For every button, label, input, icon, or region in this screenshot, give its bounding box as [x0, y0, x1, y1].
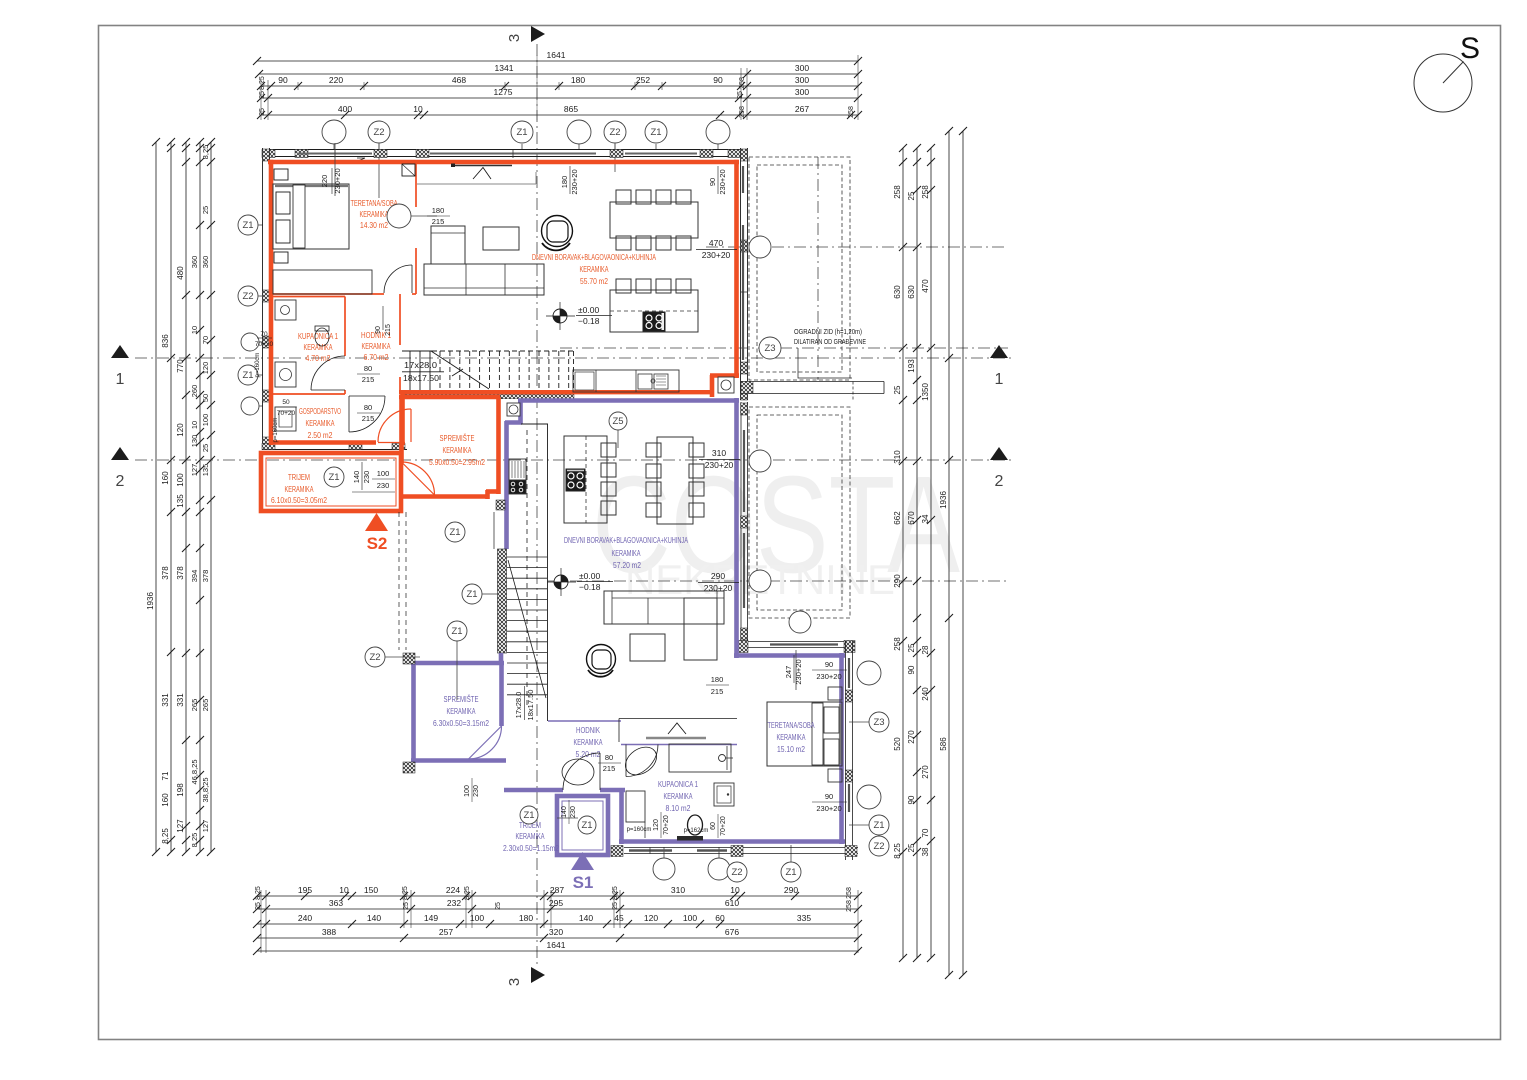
- svg-text:310: 310: [893, 450, 902, 464]
- svg-text:230+20: 230+20: [816, 804, 841, 813]
- svg-text:25: 25: [201, 444, 210, 452]
- svg-text:80: 80: [364, 364, 372, 373]
- svg-text:45: 45: [614, 913, 624, 923]
- svg-text:1936: 1936: [939, 491, 948, 509]
- svg-text:215: 215: [603, 764, 616, 773]
- svg-text:230: 230: [377, 481, 390, 490]
- svg-text:18x17.50: 18x17.50: [403, 373, 439, 383]
- svg-text:1641: 1641: [547, 50, 566, 60]
- svg-text:70+20: 70+20: [720, 816, 727, 836]
- svg-text:258: 258: [739, 77, 746, 89]
- svg-text:KERAMIKA: KERAMIKA: [443, 446, 472, 455]
- svg-text:KERAMIKA: KERAMIKA: [516, 832, 545, 841]
- svg-text:8,25: 8,25: [161, 828, 170, 844]
- svg-text:224: 224: [446, 885, 460, 895]
- svg-text:140: 140: [352, 471, 361, 484]
- svg-text:Z1: Z1: [873, 820, 884, 831]
- svg-text:57.20 m2: 57.20 m2: [613, 561, 641, 570]
- svg-text:SPREMIŠTE: SPREMIŠTE: [444, 695, 479, 704]
- svg-text:388: 388: [322, 927, 336, 937]
- svg-text:1341: 1341: [495, 63, 514, 73]
- svg-text:DNEVNI BORAVAK+BLAGOVAONICA+KU: DNEVNI BORAVAK+BLAGOVAONICA+KUHINJA: [532, 253, 656, 262]
- svg-text:70: 70: [260, 331, 268, 338]
- svg-text:18x17.50: 18x17.50: [526, 690, 535, 721]
- svg-text:100: 100: [176, 473, 185, 487]
- svg-text:±0.00: ±0.00: [579, 571, 600, 581]
- svg-text:TRIJEM: TRIJEM: [288, 473, 310, 482]
- svg-text:90: 90: [907, 665, 916, 674]
- svg-text:310: 310: [671, 885, 685, 895]
- svg-text:Z2: Z2: [609, 127, 620, 138]
- svg-text:270: 270: [907, 730, 916, 744]
- svg-text:Z1: Z1: [785, 867, 796, 878]
- svg-text:198: 198: [176, 783, 185, 797]
- svg-text:265: 265: [201, 699, 210, 712]
- svg-text:120: 120: [201, 362, 210, 375]
- svg-text:Z3: Z3: [873, 717, 884, 728]
- svg-text:p=160cm: p=160cm: [255, 353, 261, 378]
- svg-text:1936: 1936: [146, 592, 155, 610]
- svg-text:90: 90: [375, 326, 382, 334]
- svg-text:KERAMIKA: KERAMIKA: [362, 342, 391, 351]
- svg-text:Z1: Z1: [449, 527, 460, 538]
- svg-text:25: 25: [737, 91, 744, 99]
- svg-text:100: 100: [464, 785, 471, 797]
- svg-text:267: 267: [795, 104, 809, 114]
- svg-text:17x28.0: 17x28.0: [514, 692, 523, 719]
- svg-text:230+20: 230+20: [570, 169, 579, 194]
- svg-text:400: 400: [338, 104, 352, 114]
- svg-text:p=162cm: p=162cm: [684, 828, 709, 834]
- svg-text:70: 70: [201, 336, 210, 344]
- svg-text:25: 25: [907, 643, 916, 652]
- svg-text:Z1: Z1: [328, 472, 339, 483]
- svg-text:240: 240: [298, 913, 312, 923]
- svg-text:230+20: 230+20: [718, 169, 727, 194]
- svg-text:38: 38: [921, 847, 930, 856]
- svg-text:HODNIK: HODNIK: [576, 726, 601, 735]
- svg-text:670: 670: [907, 511, 916, 525]
- svg-text:140: 140: [579, 913, 593, 923]
- svg-text:S1: S1: [573, 873, 594, 892]
- svg-text:10: 10: [190, 326, 199, 334]
- svg-text:140: 140: [561, 806, 568, 818]
- svg-text:KERAMIKA: KERAMIKA: [285, 485, 314, 494]
- svg-text:90: 90: [708, 178, 717, 186]
- svg-text:25: 25: [201, 206, 210, 214]
- svg-text:Z1: Z1: [650, 127, 661, 138]
- svg-text:8,25: 8,25: [402, 886, 409, 900]
- svg-text:6.30x0.50=3.15m2: 6.30x0.50=3.15m2: [433, 719, 489, 728]
- svg-text:2.30x0.50=1.15m2: 2.30x0.50=1.15m2: [503, 844, 559, 853]
- svg-text:290: 290: [784, 885, 798, 895]
- svg-text:1641: 1641: [547, 940, 566, 950]
- svg-text:25: 25: [259, 108, 266, 116]
- svg-text:25: 25: [495, 902, 502, 910]
- svg-text:120: 120: [653, 819, 660, 831]
- svg-text:100: 100: [683, 913, 697, 923]
- svg-text:3: 3: [506, 34, 523, 42]
- svg-text:15.10 m2: 15.10 m2: [777, 745, 805, 754]
- svg-text:127: 127: [176, 819, 185, 833]
- svg-text:25: 25: [403, 902, 410, 910]
- svg-text:470: 470: [709, 238, 723, 248]
- svg-text:55.70 m2: 55.70 m2: [580, 277, 608, 286]
- svg-text:295: 295: [549, 898, 563, 908]
- svg-text:KERAMIKA: KERAMIKA: [447, 707, 476, 716]
- svg-text:270: 270: [921, 765, 930, 779]
- svg-text:46,8,25: 46,8,25: [190, 759, 199, 784]
- svg-text:25: 25: [612, 902, 619, 910]
- svg-text:120: 120: [176, 423, 185, 437]
- svg-text:TERETANA/SOBA: TERETANA/SOBA: [768, 721, 815, 730]
- svg-text:Z2: Z2: [731, 867, 742, 878]
- svg-text:Z1: Z1: [581, 820, 592, 831]
- svg-text:100: 100: [470, 913, 484, 923]
- svg-text:394: 394: [190, 570, 199, 583]
- svg-text:25: 25: [255, 902, 262, 910]
- svg-text:230+20: 230+20: [333, 168, 342, 193]
- svg-text:258: 258: [921, 185, 930, 199]
- svg-text:25: 25: [907, 843, 916, 852]
- svg-text:90: 90: [713, 75, 723, 85]
- svg-text:865: 865: [564, 104, 578, 114]
- svg-text:28: 28: [921, 645, 930, 654]
- svg-text:8.10 m2: 8.10 m2: [666, 804, 691, 813]
- svg-text:480: 480: [176, 266, 185, 280]
- svg-text:KUPAONICA 1: KUPAONICA 1: [298, 332, 338, 341]
- svg-text:−0.18: −0.18: [579, 582, 601, 592]
- svg-text:363: 363: [329, 898, 343, 908]
- svg-text:220: 220: [329, 75, 343, 85]
- svg-text:2: 2: [116, 473, 125, 490]
- svg-text:150: 150: [364, 885, 378, 895]
- svg-text:1350: 1350: [921, 383, 930, 401]
- svg-text:Z1: Z1: [242, 220, 253, 231]
- svg-text:230+20: 230+20: [702, 250, 731, 260]
- svg-text:135: 135: [201, 464, 210, 477]
- svg-text:2.50 m2: 2.50 m2: [308, 431, 333, 440]
- svg-text:10: 10: [190, 421, 199, 429]
- svg-text:252: 252: [636, 75, 650, 85]
- svg-text:662: 662: [893, 511, 902, 525]
- svg-text:OGRADNI ZID (h=1,20m): OGRADNI ZID (h=1,20m): [794, 327, 862, 336]
- svg-text:331: 331: [176, 693, 185, 707]
- svg-text:DNEVNI BORAVAK+BLAGOVAONICA+KU: DNEVNI BORAVAK+BLAGOVAONICA+KUHINJA: [564, 536, 688, 545]
- svg-text:258: 258: [893, 637, 902, 651]
- svg-text:215: 215: [432, 217, 445, 226]
- svg-text:100: 100: [201, 414, 210, 427]
- svg-text:10: 10: [339, 885, 349, 895]
- svg-text:90: 90: [825, 660, 833, 669]
- svg-text:Z1: Z1: [451, 626, 462, 637]
- svg-text:25: 25: [259, 91, 266, 99]
- svg-text:836: 836: [161, 334, 170, 348]
- svg-text:4.70 m2: 4.70 m2: [306, 354, 331, 363]
- svg-text:50: 50: [282, 399, 290, 406]
- svg-text:230+20: 230+20: [705, 460, 734, 470]
- svg-text:230: 230: [473, 785, 480, 797]
- svg-text:Z2: Z2: [242, 291, 253, 302]
- svg-text:676: 676: [725, 927, 739, 937]
- svg-text:Z1: Z1: [523, 810, 534, 821]
- svg-text:130: 130: [190, 435, 199, 448]
- svg-text:p=160cm: p=160cm: [627, 827, 652, 833]
- svg-text:149: 149: [424, 913, 438, 923]
- svg-text:70+20: 70+20: [255, 341, 274, 348]
- svg-text:610: 610: [725, 898, 739, 908]
- svg-text:71: 71: [161, 771, 170, 780]
- svg-text:KERAMIKA: KERAMIKA: [360, 210, 389, 219]
- svg-text:247: 247: [784, 666, 793, 679]
- svg-text:360: 360: [190, 256, 199, 269]
- svg-text:135: 135: [176, 494, 185, 508]
- svg-text:630: 630: [893, 285, 902, 299]
- svg-text:5.90x0.50=2.95m2: 5.90x0.50=2.95m2: [429, 458, 485, 467]
- svg-text:38,8,25: 38,8,25: [201, 777, 210, 802]
- svg-text:230: 230: [570, 806, 577, 818]
- svg-text:90: 90: [825, 792, 833, 801]
- svg-text:215: 215: [362, 414, 375, 423]
- svg-text:230: 230: [362, 471, 371, 484]
- svg-text:90: 90: [907, 795, 916, 804]
- svg-text:265: 265: [190, 699, 199, 712]
- svg-text:378: 378: [201, 570, 210, 583]
- svg-text:120: 120: [644, 913, 658, 923]
- svg-text:p=160cm: p=160cm: [273, 418, 279, 443]
- svg-text:100: 100: [377, 469, 390, 478]
- svg-text:240: 240: [921, 687, 930, 701]
- svg-text:Z2: Z2: [373, 127, 384, 138]
- svg-text:257: 257: [439, 927, 453, 937]
- svg-text:KERAMIKA: KERAMIKA: [574, 738, 603, 747]
- svg-text:8,25: 8,25: [612, 886, 619, 900]
- svg-text:±0.00: ±0.00: [578, 305, 599, 315]
- svg-text:1275: 1275: [494, 87, 513, 97]
- svg-text:160: 160: [161, 793, 170, 807]
- svg-text:Z1: Z1: [466, 589, 477, 600]
- svg-text:290: 290: [711, 571, 725, 581]
- svg-text:10: 10: [413, 104, 423, 114]
- svg-text:S: S: [1460, 32, 1480, 65]
- svg-text:60: 60: [710, 822, 717, 830]
- svg-text:470: 470: [921, 279, 930, 293]
- svg-text:520: 520: [893, 737, 902, 751]
- svg-text:195: 195: [298, 885, 312, 895]
- svg-text:360: 360: [201, 256, 210, 269]
- svg-text:258: 258: [846, 887, 853, 899]
- svg-text:290: 290: [893, 574, 902, 588]
- svg-text:160: 160: [161, 471, 170, 485]
- svg-text:80: 80: [605, 753, 613, 762]
- svg-text:KERAMIKA: KERAMIKA: [306, 419, 335, 428]
- svg-text:Z1: Z1: [242, 370, 253, 381]
- svg-text:378: 378: [161, 566, 170, 580]
- svg-text:2: 2: [995, 473, 1004, 490]
- svg-text:180: 180: [571, 75, 585, 85]
- svg-text:260: 260: [190, 385, 199, 398]
- svg-text:KERAMIKA: KERAMIKA: [580, 265, 609, 274]
- svg-text:258: 258: [848, 106, 855, 118]
- svg-text:6.10x0.50=3.05m2: 6.10x0.50=3.05m2: [271, 496, 327, 505]
- svg-text:25: 25: [907, 191, 916, 200]
- svg-text:331: 331: [161, 693, 170, 707]
- svg-text:140: 140: [367, 913, 381, 923]
- svg-text:80: 80: [364, 403, 372, 412]
- svg-text:215: 215: [711, 687, 724, 696]
- svg-text:8,25: 8,25: [893, 843, 902, 859]
- svg-text:Z3: Z3: [764, 343, 775, 354]
- svg-text:230+20: 230+20: [794, 659, 803, 684]
- svg-text:630: 630: [907, 285, 916, 299]
- svg-text:300: 300: [795, 75, 809, 85]
- svg-text:180: 180: [519, 913, 533, 923]
- svg-text:S2: S2: [367, 534, 388, 553]
- svg-text:300: 300: [795, 87, 809, 97]
- svg-text:287: 287: [550, 885, 564, 895]
- svg-text:90: 90: [278, 75, 288, 85]
- svg-text:50: 50: [201, 394, 210, 402]
- svg-text:KUPAONICA 1: KUPAONICA 1: [658, 780, 698, 789]
- svg-text:468: 468: [452, 75, 466, 85]
- svg-text:70: 70: [921, 828, 930, 837]
- svg-text:230+20: 230+20: [816, 672, 841, 681]
- svg-text:8,25: 8,25: [259, 76, 266, 90]
- svg-text:180: 180: [711, 675, 724, 684]
- svg-text:KERAMIKA: KERAMIKA: [612, 549, 641, 558]
- svg-text:1: 1: [116, 371, 125, 388]
- svg-text:215: 215: [385, 324, 392, 336]
- svg-text:KERAMIKA: KERAMIKA: [777, 733, 806, 742]
- svg-text:127: 127: [190, 464, 199, 477]
- svg-text:SPREMIŠTE: SPREMIŠTE: [440, 434, 475, 443]
- svg-text:127: 127: [201, 820, 210, 833]
- svg-text:Z1: Z1: [516, 127, 527, 138]
- svg-text:GOSPODARSTVO: GOSPODARSTVO: [299, 407, 341, 416]
- svg-text:180: 180: [432, 206, 445, 215]
- svg-text:8,25: 8,25: [255, 886, 262, 900]
- svg-text:215: 215: [362, 375, 375, 384]
- svg-text:Z2: Z2: [369, 652, 380, 663]
- svg-text:3: 3: [506, 978, 523, 986]
- svg-text:60: 60: [715, 913, 725, 923]
- svg-text:6.70 m2: 6.70 m2: [364, 353, 389, 362]
- svg-text:378: 378: [176, 566, 185, 580]
- svg-text:180: 180: [560, 176, 569, 189]
- svg-text:25: 25: [893, 385, 902, 394]
- svg-text:586: 586: [939, 737, 948, 751]
- svg-text:14.30 m2: 14.30 m2: [360, 221, 388, 230]
- svg-text:8,25: 8,25: [464, 886, 471, 900]
- svg-text:232: 232: [447, 898, 461, 908]
- svg-text:320: 320: [549, 927, 563, 937]
- svg-text:17x28.0: 17x28.0: [404, 360, 437, 370]
- svg-text:258: 258: [739, 106, 746, 118]
- svg-text:258: 258: [893, 185, 902, 199]
- svg-text:258: 258: [846, 900, 853, 912]
- svg-text:8,25: 8,25: [201, 145, 210, 160]
- svg-text:8,25: 8,25: [190, 833, 199, 848]
- svg-text:Z2: Z2: [873, 841, 884, 852]
- svg-text:34: 34: [921, 514, 930, 523]
- svg-text:300: 300: [795, 63, 809, 73]
- svg-text:−0.18: −0.18: [578, 316, 600, 326]
- svg-text:770: 770: [176, 359, 185, 373]
- svg-text:Z5: Z5: [612, 416, 623, 427]
- svg-text:DILATIRAN OD GRAĐEVINE: DILATIRAN OD GRAĐEVINE: [794, 337, 866, 346]
- svg-text:193: 193: [907, 359, 916, 373]
- svg-text:335: 335: [797, 913, 811, 923]
- svg-text:220: 220: [320, 175, 329, 188]
- svg-text:310: 310: [712, 448, 726, 458]
- svg-text:10: 10: [730, 885, 740, 895]
- svg-text:1: 1: [995, 371, 1004, 388]
- svg-text:KERAMIKA: KERAMIKA: [664, 792, 693, 801]
- svg-text:70+20: 70+20: [663, 815, 670, 835]
